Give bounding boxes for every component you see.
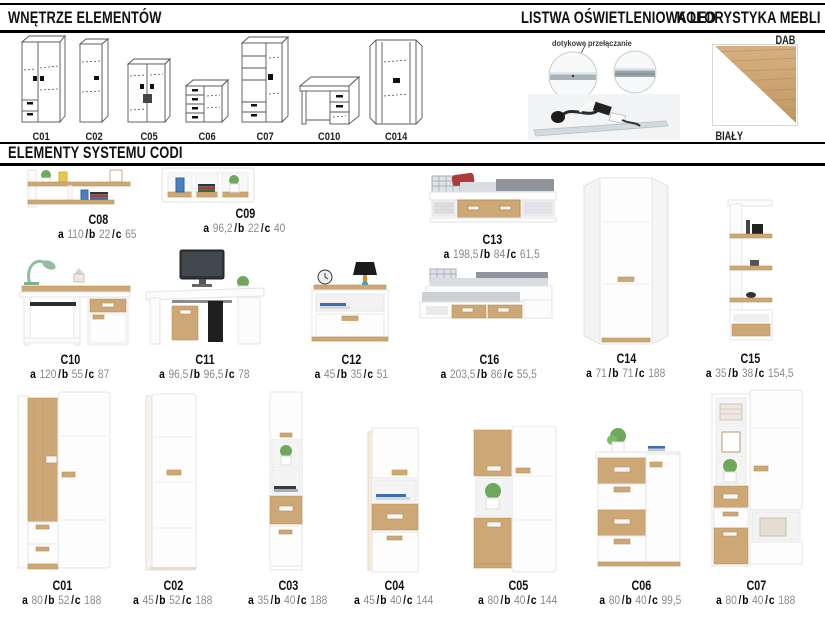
product-photo-c10 <box>16 250 134 350</box>
interior-drawing-c014 <box>368 34 424 126</box>
led-illustration <box>518 32 690 144</box>
interior-drawing-c05 <box>124 56 174 126</box>
product-photo-c11 <box>142 246 268 350</box>
top-rule <box>0 3 825 5</box>
interior-label: C01 <box>11 127 71 145</box>
catalog-page: WNĘTRZE ELEMENTÓW LISTWA OŚWIETLENIOWA L… <box>0 0 825 619</box>
product-photo-c07 <box>706 388 806 576</box>
interior-drawing-c01 <box>16 32 66 126</box>
product-photo-c15 <box>724 198 776 348</box>
product-photo-c14 <box>582 176 670 348</box>
product-dims: a 80/b 40/c 188 <box>681 591 825 609</box>
interior-label: C010 <box>299 127 359 145</box>
section-title-interiors: WNĘTRZE ELEMENTÓW <box>8 9 205 28</box>
product-dims: a 96,2/b 22/c 40 <box>170 219 320 237</box>
product-photo-c01 <box>16 390 112 576</box>
interior-label: C014 <box>366 127 426 145</box>
interior-drawing-c06 <box>182 76 232 126</box>
product-photo-c06 <box>590 424 686 576</box>
interior-drawing-c010 <box>296 72 362 126</box>
product-photo-c03 <box>266 390 306 576</box>
color-swatch <box>712 44 798 126</box>
interior-label: C02 <box>64 127 124 145</box>
section-title-colors: KOLORYSTYKA MEBLI <box>636 9 821 28</box>
section-title-elements: ELEMENTY SYSTEMU CODI <box>8 144 232 163</box>
product-dims: a 96,5/b 96,5/c 78 <box>130 365 280 383</box>
header-underline <box>0 30 825 33</box>
product-dims: a 45/b 35/c 51 <box>277 365 427 383</box>
interior-label: C07 <box>235 127 295 145</box>
product-photo-c09 <box>160 166 256 206</box>
product-photo-c13 <box>424 168 562 230</box>
interior-label: C05 <box>119 127 179 145</box>
product-dims: a 203,5/b 86/c 55,5 <box>414 365 564 383</box>
product-dims: a 35/b 38/c 154,5 <box>675 364 825 382</box>
color-label-white: BIAŁY <box>712 127 747 145</box>
product-photo-c16 <box>418 264 564 348</box>
product-dims: a 110/b 22/c 65 <box>23 225 173 243</box>
product-photo-c02 <box>142 392 202 576</box>
product-photo-c08 <box>24 166 134 214</box>
product-dims: a 120/b 55/c 87 <box>0 365 145 383</box>
product-dims: a 198,5/b 84/c 61,5 <box>417 245 567 263</box>
interior-drawing-c07 <box>238 34 292 126</box>
product-photo-c05 <box>468 426 562 578</box>
interior-label: C06 <box>177 127 237 145</box>
product-photo-c12 <box>306 258 394 350</box>
interior-drawing-c02 <box>76 36 112 126</box>
product-photo-c04 <box>364 426 422 576</box>
